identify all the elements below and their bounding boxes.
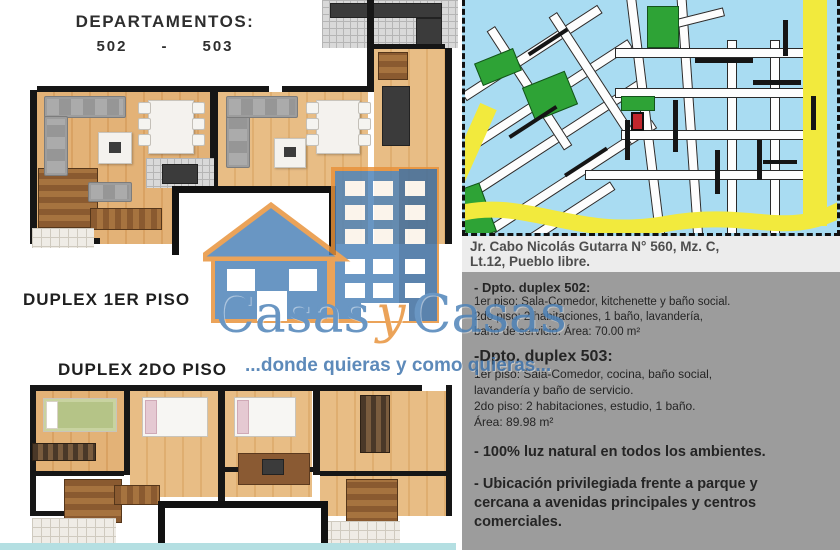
wall — [124, 391, 130, 475]
stairs-502-run — [90, 208, 162, 230]
apt503-line1: 1er piso: Sala-Comedor, cocina, baño soc… — [474, 366, 828, 382]
chair — [358, 102, 371, 114]
wall — [320, 471, 446, 476]
unit-number-502: 502 — [96, 38, 127, 55]
coffee-table-503 — [274, 138, 306, 168]
stairs-side — [378, 52, 408, 80]
bed-white-2 — [234, 397, 296, 437]
wall — [282, 86, 374, 92]
unit-numbers: 502 - 503 — [50, 38, 280, 55]
feature-location: - Ubicación privilegiada frente a parque… — [474, 475, 828, 532]
apt502-line3: baño de servicio. Área: 70.00 m² — [474, 325, 828, 340]
street-label — [673, 100, 678, 152]
wardrobe — [360, 395, 390, 453]
wall — [445, 48, 452, 244]
kitchen-appliance — [416, 18, 442, 46]
sofa-502 — [44, 96, 126, 118]
feature-location-line2: cercana a avenidas principales y centros — [474, 494, 828, 513]
street-label — [625, 120, 630, 160]
dark-sofa-side — [382, 86, 410, 146]
unit-number-503: 503 — [203, 38, 234, 55]
property-marker — [631, 112, 644, 131]
apt503-line2: lavandería y baño de servicio. — [474, 382, 828, 398]
range-502 — [162, 164, 198, 184]
chair — [138, 118, 151, 130]
wall — [367, 0, 374, 92]
floorplan-second-level — [30, 385, 422, 543]
location-map — [462, 0, 840, 236]
wall — [30, 385, 422, 391]
apt502-line2: 2do piso: 2 habitaciones, 1 baño, lavand… — [474, 310, 828, 325]
real-estate-flyer: DEPARTAMENTOS: 502 - 503 — [0, 0, 840, 550]
bath-left — [32, 518, 116, 543]
sofa-chaise-502 — [44, 116, 68, 176]
wall — [30, 90, 37, 244]
sofa-503 — [226, 96, 298, 118]
chair — [358, 134, 371, 146]
desk-chair — [262, 459, 284, 475]
address-line2: Lt.12, Pueblo libre. — [470, 254, 832, 269]
wall — [446, 385, 452, 516]
feature-location-line3: comerciales. — [474, 513, 828, 532]
apt503-title: -Dpto. duplex 503: — [474, 348, 828, 366]
chair — [306, 102, 319, 114]
chair — [138, 102, 151, 114]
stairwell-void — [172, 186, 336, 255]
duplex2-label: DUPLEX 2DO PISO — [58, 360, 227, 380]
apt503-line3: 2do piso: 2 habitaciones, estudio, 1 bañ… — [474, 398, 828, 414]
bath-right — [322, 521, 400, 543]
wall — [374, 44, 445, 49]
logo-word1: Casas — [215, 285, 370, 345]
address-line1: Jr. Cabo Nicolás Gutarra N° 560, Mz. C, — [470, 239, 832, 254]
chair — [192, 134, 205, 146]
chair — [192, 102, 205, 114]
bed-green — [43, 398, 117, 432]
coffee-table-502 — [98, 132, 132, 164]
unit-dash: - — [162, 38, 169, 55]
feature-location-line1: - Ubicación privilegiada frente a parque… — [474, 475, 828, 494]
feature-light: - 100% luz natural en todos los ambiente… — [474, 443, 828, 462]
chair — [306, 118, 319, 130]
details-panel: - Dpto. duplex 502: 1er piso: Sala-Comed… — [462, 272, 840, 550]
street-label — [695, 58, 753, 63]
stairs-left-run — [114, 485, 160, 505]
wall — [36, 471, 124, 476]
wall — [37, 86, 269, 92]
dining-table-503 — [316, 100, 360, 154]
kitchen-counter — [330, 3, 442, 18]
wall — [313, 391, 320, 475]
stairs-right — [346, 479, 398, 525]
header: DEPARTAMENTOS: 502 - 503 — [50, 12, 280, 55]
bath-502 — [32, 228, 94, 248]
apt503-line4: Área: 89.98 m² — [474, 414, 828, 430]
wall — [218, 391, 225, 503]
bookshelf — [32, 443, 96, 461]
chair — [358, 118, 371, 130]
street-label — [757, 140, 762, 180]
bed-white-1 — [142, 397, 208, 437]
ottoman-502 — [88, 182, 132, 202]
apt502-line1: 1er piso: Sala-Comedor, kitchenette y ba… — [474, 295, 828, 310]
chair — [138, 134, 151, 146]
address-bar: Jr. Cabo Nicolás Gutarra N° 560, Mz. C, … — [462, 236, 840, 272]
street-label — [715, 150, 720, 194]
apt502-title: - Dpto. duplex 502: — [474, 280, 828, 295]
duplex1-label: DUPLEX 1ER PISO — [23, 290, 190, 310]
street-label — [783, 20, 788, 56]
logo-conjunction: y — [376, 285, 405, 345]
page-title: DEPARTAMENTOS: — [50, 12, 280, 32]
chair — [192, 118, 205, 130]
street-label — [763, 160, 797, 164]
avenue-label — [811, 96, 816, 130]
chair — [306, 134, 319, 146]
street-label — [753, 80, 801, 85]
dining-table-502 — [148, 100, 194, 154]
bottom-accent-strip — [0, 543, 456, 550]
